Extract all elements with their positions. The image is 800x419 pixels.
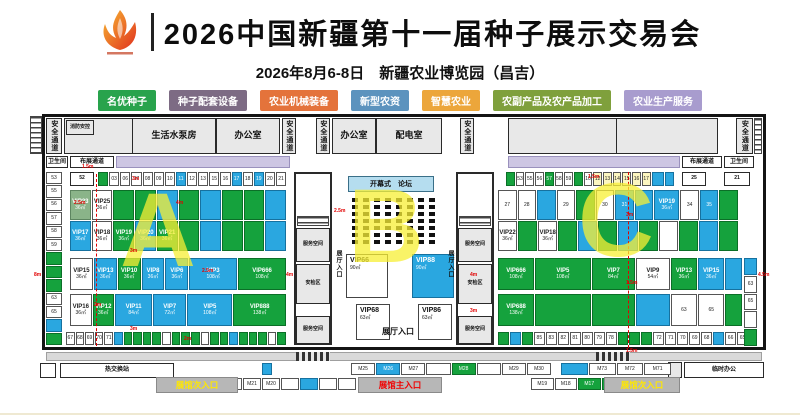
booth-cell: M21 [243,378,261,390]
seat-dot [374,198,380,202]
booth-cell: 70 [677,332,688,345]
seat-dot [385,212,391,216]
booth-cell [629,332,640,345]
dimension-label: 3m [130,326,137,332]
stairs-hatch-right [754,118,762,154]
booth-cell: M29 [502,363,526,375]
right-block-divider [616,118,617,154]
vip-booth: VIP1736㎡ [70,221,91,251]
legend-chip: 农副产品及农产品加工 [493,90,611,111]
booth-cell [258,332,267,345]
seat-dot [363,240,369,244]
seat-dot [396,219,402,223]
fire-lane-line-c [628,172,629,348]
booth-cell [652,172,665,186]
bottom-corridor [46,352,762,361]
booth-cell: 16 [220,172,230,186]
booth-cell [244,190,265,220]
security-zone-2: 安检区 [458,264,492,304]
dimension-label: 3m [132,176,139,182]
booth-cell [535,294,591,326]
booth-cell: 21 [276,172,286,186]
booth-cell [46,266,62,278]
booth-cell: M19 [531,378,554,390]
booth-cell [300,378,318,390]
vip-booth: VIP666108㎡ [238,258,286,290]
booth-cell [135,190,156,220]
booth-cell [744,311,757,328]
hall-c-row-5: 8583828180797872717069686665 [498,332,748,345]
legend-chip: 名优种子 [98,90,156,111]
booth-cell [636,294,670,326]
vip-booth: VIP1184㎡ [115,294,152,326]
seat-dot [429,219,435,223]
service-space-1b: 服务空间 [296,316,330,344]
exhibition-floorplan-poster: 2026中国新疆第十一届种子展示交易会 2026年8月6-8日 新疆农业博览园（… [0,0,800,419]
seat-dot [385,205,391,209]
booth-cell: 53 [516,172,525,186]
booth-cell: 69 [85,332,94,345]
booth-cell [114,332,123,345]
booth-cell [574,172,583,186]
booth-cell: 63 [744,276,757,293]
booth-cell: M17 [578,378,601,390]
seat-dot [374,233,380,237]
booth-cell: 85 [534,332,545,345]
event-subtitle: 2026年8月6-8日 新疆农业博览园（昌吉） [0,62,800,83]
fire-lane-line-a [96,174,97,346]
seat-dot [363,212,369,216]
booth-cell [200,190,221,220]
legend-chip: 种子配套设备 [169,90,247,111]
booth-cell [265,221,286,251]
legend-chip: 农业机械装备 [260,90,338,111]
seat-dot [352,233,358,237]
hall-c-box-25: 25 [682,172,706,186]
seat-dot [429,212,435,216]
safety-corridor-mid2: 安全通道 [460,118,474,154]
vip-booth: VIP1836㎡ [538,221,557,251]
booth-cell [498,332,509,345]
booth-cell [576,190,595,220]
main-entrance: 展馆主入口 [358,377,442,393]
right-rooms-block [508,118,718,154]
seat-dot [352,219,358,223]
annex-box-left [40,363,56,378]
setup-corridor-bar-left [116,156,290,168]
hall-a-vip-row-lower: VIP1736㎡VIP1836㎡VIP1936㎡VIP2036㎡VIP2136㎡ [70,221,286,251]
vip-booth: VIP888138㎡ [233,294,286,326]
booth-cell: 65 [46,306,62,318]
booth-cell: 78 [606,332,617,345]
seat-dot [352,240,358,244]
booth-cell: M71 [644,363,671,375]
m-booth-row-2: M73M72M71 [561,363,671,375]
seat-dot [352,198,358,202]
booth-cell: 20 [265,172,275,186]
vip-booth: VIP1836㎡ [92,221,113,251]
setup-corridor-bar-right [508,156,680,168]
vip86-size: 63㎡ [422,314,433,321]
seat-dot [396,205,402,209]
toilet-right: 卫生间 [724,156,754,168]
booth-cell: 56 [535,172,544,186]
fire-control-room: 消防安控 [66,120,94,135]
booth-cell: 79 [594,332,605,345]
seat-dot [363,226,369,230]
booth-cell [201,332,210,345]
seat-dot [418,212,424,216]
toilet-left: 卫生间 [46,156,68,168]
booth-cell [179,221,200,251]
booth-cell: 27 [498,190,517,220]
booth-cell: 65 [744,294,757,311]
booth-cell [618,332,629,345]
dimension-label: 4.5m [758,272,769,278]
booth-cell: 19 [254,172,264,186]
seat-dot [429,240,435,244]
seat-dot [396,198,402,202]
seat-dot [363,198,369,202]
seat-dot [385,233,391,237]
seat-dot [352,226,358,230]
booth-cell [239,332,248,345]
m-booth-row-1: M25M26M27M28M29M30 [351,363,551,375]
booth-cell: 08 [143,172,153,186]
booth-cell: 65 [698,294,724,326]
booth-cell [46,279,62,291]
dimension-label: 8m [34,272,41,278]
seat-dot [396,240,402,244]
seat-dot [374,212,380,216]
booth-cell: 15 [622,172,631,186]
hall-a-box-52: 52 [70,172,94,186]
booth-cell: M30 [527,363,551,375]
booth-cell: 71 [665,332,676,345]
seat-dot [407,198,413,202]
seat-dot [352,205,358,209]
strip2-stairs-hatch [459,216,491,226]
booth-cell [477,363,501,375]
booth-cell: 59 [46,239,62,251]
vip86-booth: VIP86 63㎡ [418,304,452,340]
seat-dot [396,226,402,230]
legend-chip: 智慧农业 [422,90,480,111]
booth-cell: 17 [642,172,651,186]
booth-cell: M18 [555,378,578,390]
seat-dot [374,226,380,230]
booth-cell: 80 [582,332,593,345]
seat-dot [418,240,424,244]
seat-dot [418,219,424,223]
office-room-mid: 办公室 [332,118,376,154]
booth-cell: 28 [518,190,537,220]
bottom-accent-line [0,413,800,415]
booth-cell: 83 [546,332,557,345]
booth-cell [200,221,221,251]
seat-dot [363,205,369,209]
booth-cell [338,378,356,390]
booth-cell [249,332,258,345]
vip-booth: VIP836㎡ [142,258,165,290]
booth-cell: 57 [46,212,62,224]
booth-cell: M25 [351,363,375,375]
booth-cell: 68 [701,332,712,345]
seat-dot [374,219,380,223]
booth-cell [426,363,450,375]
seat-dot [429,226,435,230]
booth-cell: 13 [198,172,208,186]
seat-dot [418,233,424,237]
booth-cell: 57 [545,172,554,186]
vip88-size: 90㎡ [416,264,427,271]
temp-office: 临时办公 [684,362,764,378]
booth-cell [558,221,577,251]
booth-cell: 63 [46,293,62,305]
vip66-booth: VIP66 90㎡ [346,254,388,298]
booth-cell: 17 [232,172,242,186]
booth-cell: 67 [66,332,75,345]
booth-cell: 11 [176,172,186,186]
booth-cell [744,258,757,275]
dimension-label: 4m [176,200,183,206]
booth-cell: M28 [452,363,476,375]
seat-dot [407,205,413,209]
safety-corridor-left2: 安全通道 [282,118,296,154]
booth-cell [537,190,556,220]
dimension-label: 1.5m [626,348,637,354]
seat-dot [363,219,369,223]
booth-cell [124,332,133,345]
seat-dot [407,212,413,216]
category-legend: 名优种子种子配套设备农业机械装备新型农资智慧农业农副产品及农产品加工农业生产服务 [0,90,800,111]
booth-cell [665,172,674,186]
booth-cell [157,190,178,220]
booth-cell: 35 [700,190,719,220]
seat-grid [352,198,430,244]
booth-cell: 68 [76,332,85,345]
title-divider [151,13,154,51]
booth-cell [143,332,152,345]
seat-dot [418,226,424,230]
booth-cell [719,190,738,220]
vip-booth: VIP1936㎡ [113,221,134,251]
vip-booth: VIP1036㎡ [118,258,141,290]
seat-dot [396,233,402,237]
seat-dot [374,240,380,244]
booth-cell: M20 [262,378,280,390]
seat-dot [407,233,413,237]
seat-dot [429,198,435,202]
booth-cell [210,332,219,345]
booth-cell [699,221,718,251]
booth-cell: 10 [165,172,175,186]
booth-cell: M72 [617,363,644,375]
booth-cell [635,190,654,220]
booth-cell [719,221,738,251]
booth-cell [659,221,678,251]
vip86-label: VIP86 [422,307,441,314]
heat-exchange-station: 热交换站 [60,363,174,378]
seat-dot [352,212,358,216]
side-entrance-right: 展馆次入口 [604,377,680,393]
vip-booth: VIP5108㎡ [535,258,591,290]
booth-cell [725,258,742,290]
dimension-label: 3m [130,248,137,254]
booth-cell [265,190,286,220]
booth-cell: 58 [46,226,62,238]
booth-cell [510,332,521,345]
corridor-hatch-2 [596,352,630,361]
dimension-label: 1.5m [82,164,93,170]
booth-cell [172,332,181,345]
booth-cell [152,332,161,345]
booth-cell: 81 [570,332,581,345]
booth-cell: 16 [632,172,641,186]
dimension-label: 4m [286,272,293,278]
booth-cell [518,221,537,251]
booth-cell: 63 [671,294,697,326]
booth-cell [244,221,265,251]
hall-c-row-4: VIP688138㎡6365 [498,294,742,326]
seat-dot [407,226,413,230]
hall-entry-label-2: 展厅入口 [446,250,455,278]
booth-cell: 03 [109,172,119,186]
vip-booth: VIP5108㎡ [187,294,232,326]
booth-cell [679,221,698,251]
legend-chip: 新型农资 [351,90,409,111]
booth-cell: 55 [525,172,534,186]
booth-cell: 71 [104,332,113,345]
dimension-label: 1.5m [588,174,599,180]
booth-cell [46,319,62,331]
seat-dot [385,240,391,244]
booth-cell: M27 [401,363,425,375]
booth-cell [46,252,62,264]
seat-dot [385,219,391,223]
vip-booth: VIP1336㎡ [671,258,697,290]
booth-cell: 72 [653,332,664,345]
booth-cell [281,378,299,390]
dimension-label: 2.5m [202,268,213,274]
seat-dot [396,212,402,216]
pump-room: 生活水泵房 [132,118,216,154]
hall-c-vip-row-lower: VIP2236㎡VIP1836㎡ [498,221,738,251]
hall-a-row-5: 6768697071 [66,332,286,345]
booth-cell [98,172,108,186]
safety-corridor-right: 安全通道 [736,118,753,154]
vip-booth: VIP1536㎡ [698,258,724,290]
hall-a-row-4: VIP1636㎡VIP1236㎡VIP1184㎡VIP772㎡VIP5108㎡V… [70,294,286,326]
corridor-hatch-1 [296,352,330,361]
hall-b-entry-text: 展厅入口 [382,326,414,337]
dimension-label: 3m [626,212,633,218]
booth-cell [220,332,229,345]
dimension-label: 2m [94,302,101,308]
hall-c-box-21: 21 [724,172,750,186]
office-room-left: 办公室 [216,118,280,154]
seat-dot [429,205,435,209]
legend-chip: 农业生产服务 [624,90,702,111]
hall-c-vip-row-upper: 2728293031VIP1936㎡3435 [498,190,738,220]
booth-cell [639,221,658,251]
booth-cell [598,221,617,251]
vip-booth: VIP1936㎡ [654,190,679,220]
booth-cell: 58 [555,172,564,186]
floor-plan: 安全通道 消防安控 生活水泵房 办公室 安全通道 安全通道 办公室 配电室 安全… [36,112,772,396]
hall-a-row-1: 03060708091011121315161718192021 [98,172,286,186]
booth-cell [522,332,533,345]
booth-cell: 55 [46,185,62,197]
vip-booth: VIP666108㎡ [498,258,534,290]
side-entrance-left: 展馆次入口 [156,377,238,393]
booth-cell [229,332,238,345]
booth-cell [277,332,286,345]
booth-cell [222,221,243,251]
vip-booth: VIP3108㎡ [189,258,237,290]
dimension-label: 1.5m [626,280,637,286]
setup-corridor-right: 布展通道 [682,156,722,168]
booth-cell: M73 [589,363,616,375]
power-room: 配电室 [376,118,442,154]
dimension-label: 4m [470,272,477,278]
header: 2026中国新疆第十一届种子展示交易会 [0,6,800,58]
vip68-label: VIP68 [360,307,379,314]
vip66-label: VIP66 [350,257,369,264]
event-title: 2026中国新疆第十一届种子展示交易会 [164,11,702,53]
vip-booth: VIP1536㎡ [70,258,93,290]
dimension-label: 2.5m [334,208,345,214]
hall-c-right-column: 6365 [744,258,757,346]
strip1-stairs-hatch [297,216,329,226]
seat-dot [385,198,391,202]
booth-cell [578,221,597,251]
seat-dot [429,233,435,237]
booth-cell [641,332,652,345]
booth-cell [191,332,200,345]
booth-cell: 06 [120,172,130,186]
hall-a-row-3: VIP1536㎡VIP1336㎡VIP1036㎡VIP836㎡VIP636㎡VI… [70,258,286,290]
booth-cell: 66 [725,332,736,345]
vip-booth: VIP954㎡ [636,258,670,290]
service-space-2a: 服务空间 [458,228,492,262]
vip-booth: VIP636㎡ [165,258,188,290]
security-zone-1: 安检区 [296,264,330,304]
booth-cell [744,329,757,346]
booth-cell: 34 [680,190,699,220]
vip-booth: VIP2036㎡ [135,221,156,251]
dimension-label: 3m [470,308,477,314]
vip66-size: 90㎡ [350,264,361,271]
phoenix-logo-icon [99,8,141,56]
booth-cell: 59 [564,172,573,186]
booth-cell: 14 [613,172,622,186]
opening-forum-stage: 开幕式 论坛 [348,176,434,192]
booth-cell [725,294,742,326]
vip-booth: VIP772㎡ [153,294,186,326]
seat-dot [385,226,391,230]
booth-cell: 09 [154,172,164,186]
booth-cell: 18 [243,172,253,186]
dimension-label: 2.5m [74,200,85,206]
hall-c-row-3: VIP666108㎡VIP5108㎡VIP784㎡VIP954㎡VIP1336㎡… [498,258,742,290]
safety-corridor-left: 安全通道 [46,118,62,154]
booth-cell: 56 [46,199,62,211]
hall-a-left-column: 5355565758596365 [46,172,62,345]
vip-booth: VIP1636㎡ [70,294,92,326]
vip-booth: VIP2536㎡ [92,190,113,220]
booth-cell [268,332,277,345]
